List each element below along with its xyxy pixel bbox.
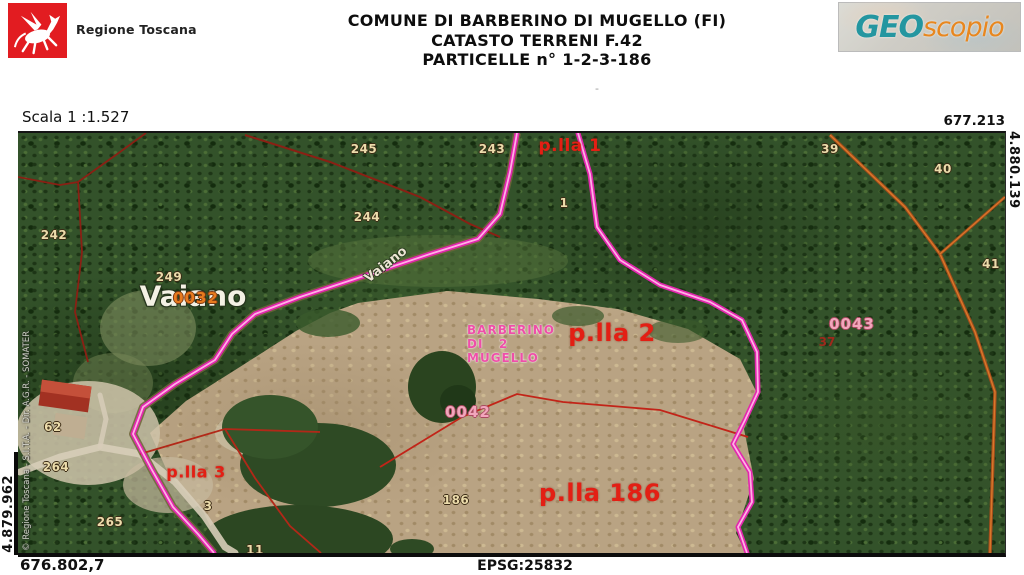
parcel-number: 40 — [934, 162, 952, 176]
parcel-number: 3 — [204, 499, 213, 513]
stray-mark: - — [595, 82, 599, 95]
parcel-number: 243 — [479, 142, 506, 156]
sheet-number: 0042 — [445, 403, 491, 421]
sheet-number: 0043 — [829, 315, 875, 333]
parcel-number: 245 — [351, 142, 378, 156]
scale-label: Scala 1 :1.527 — [22, 108, 129, 126]
parcel-number: 244 — [354, 210, 381, 224]
title-line-3: PARTICELLE n° 1-2-3-186 — [348, 50, 727, 70]
parcel-number: 264 — [43, 460, 70, 474]
parcel-number: 39 — [821, 142, 839, 156]
coord-right-vertical: 4.880.139 — [1006, 131, 1021, 209]
coord-bottom-left: 676.802,7 — [20, 556, 104, 574]
coord-top-right: 677.213 — [944, 113, 1006, 129]
map-canvas: Vaiano Vaiano BARBERINO DI 2 MUGELLO © R… — [18, 131, 1006, 557]
page-title: COMUNE DI BARBERINO DI MUGELLO (FI) CATA… — [348, 11, 727, 70]
parcel-number: 11 — [246, 543, 264, 557]
parcel-highlight-label: p.lla 186 — [539, 479, 661, 507]
parcel-number-dark: 37 — [819, 335, 836, 349]
title-line-1: COMUNE DI BARBERINO DI MUGELLO (FI) — [348, 11, 727, 31]
parcel-number: 186 — [443, 493, 470, 507]
map-annotations: 2452432442422493940411311186265264623700… — [18, 133, 1005, 553]
parcel-number: 265 — [97, 515, 124, 529]
brand-scopio-text: scopio — [923, 12, 1004, 43]
parcel-number: 62 — [44, 420, 62, 434]
sheet-number: 0032 — [173, 289, 219, 307]
parcel-highlight-label: p.lla 1 — [539, 136, 602, 156]
epsg-label: EPSG:25832 — [477, 558, 573, 574]
parcel-number: 249 — [156, 270, 183, 284]
pegasus-icon — [8, 3, 67, 58]
parcel-number: 1 — [560, 196, 569, 210]
title-line-2: CATASTO TERRENI F.42 — [348, 31, 727, 51]
brand-geo-text: GEO — [855, 10, 923, 45]
agency-name: Regione Toscana — [76, 22, 197, 37]
parcel-highlight-label: p.lla 3 — [166, 463, 226, 482]
parcel-number: 41 — [982, 257, 1000, 271]
regione-toscana-logo — [8, 3, 67, 58]
geoscopio-logo: GEOscopio — [838, 2, 1021, 52]
parcel-highlight-label: p.lla 2 — [568, 319, 656, 347]
parcel-number: 242 — [41, 228, 68, 242]
